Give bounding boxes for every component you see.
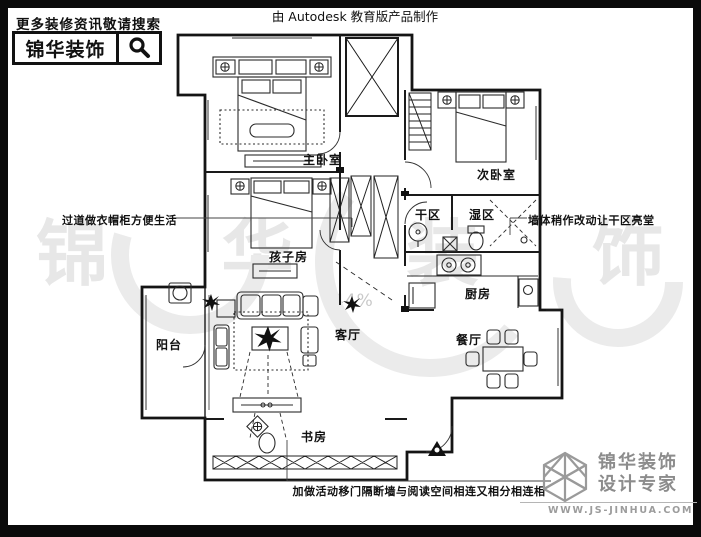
watermark-swoosh (120, 113, 674, 412)
room-label-balcony: 阳台 (156, 336, 182, 353)
room-label-living-room: 客厅 (335, 326, 361, 343)
room-label-second-bedroom: 次卧室 (477, 166, 516, 183)
light-burst-icon (255, 326, 282, 352)
autodesk-credit: 由 Autodesk 教育版产品制作 (240, 6, 470, 25)
footer-website[interactable]: WWW.JS-JINHUA.COM (548, 505, 693, 516)
footer-divider (520, 502, 697, 503)
room-label-kitchen: 厨房 (465, 285, 491, 302)
annotation-sliding-door: 加做活动移门隔断墙与阅读空间相连又相分相连相 (288, 483, 550, 499)
room-label-study: 书房 (301, 428, 327, 445)
lamp-icon (318, 182, 326, 190)
door-arcs (183, 132, 452, 452)
footer-subtitle: 设计专家 (598, 474, 690, 496)
footer-brand: 锦华装饰 (598, 452, 690, 474)
lamp-icon (253, 422, 261, 430)
lamp-icon (511, 96, 519, 104)
annotation-wall-change: 墙体稍作改动让干区亮堂 (528, 212, 655, 228)
lamp-icon (236, 182, 244, 190)
room-label-wet-area: 湿区 (469, 206, 495, 223)
lamp-icon (221, 63, 229, 71)
room-label-kids-room: 孩子房 (269, 248, 308, 265)
demolition-dash (336, 262, 392, 300)
brand-logo-text: 锦华装饰 (15, 34, 116, 62)
floorplan-drawing (0, 0, 701, 537)
room-label-dining-room: 餐厅 (456, 331, 482, 348)
lamp-icon (315, 63, 323, 71)
room-label-master-bedroom: 主卧室 (303, 151, 342, 168)
search-icon[interactable] (116, 34, 159, 62)
promo-tagline: 更多装修资讯敬请搜索 (16, 13, 161, 33)
floorplan-page: 更多装修资讯敬请搜索 锦华装饰 由 Autodesk 教育版产品制作 锦 华 装… (0, 0, 701, 537)
movable-partition (213, 456, 397, 469)
lamp-icon (443, 96, 451, 104)
room-label-dry-area: 干区 (415, 206, 441, 223)
brand-cube-logo (540, 450, 590, 504)
annotation-wardrobe: 过道做衣帽柜方便生活 (62, 212, 177, 228)
brand-search-box[interactable]: 锦华装饰 (12, 31, 162, 65)
footer-brand-block: 锦华装饰 设计专家 (598, 452, 690, 496)
entrance-marker (428, 441, 446, 456)
